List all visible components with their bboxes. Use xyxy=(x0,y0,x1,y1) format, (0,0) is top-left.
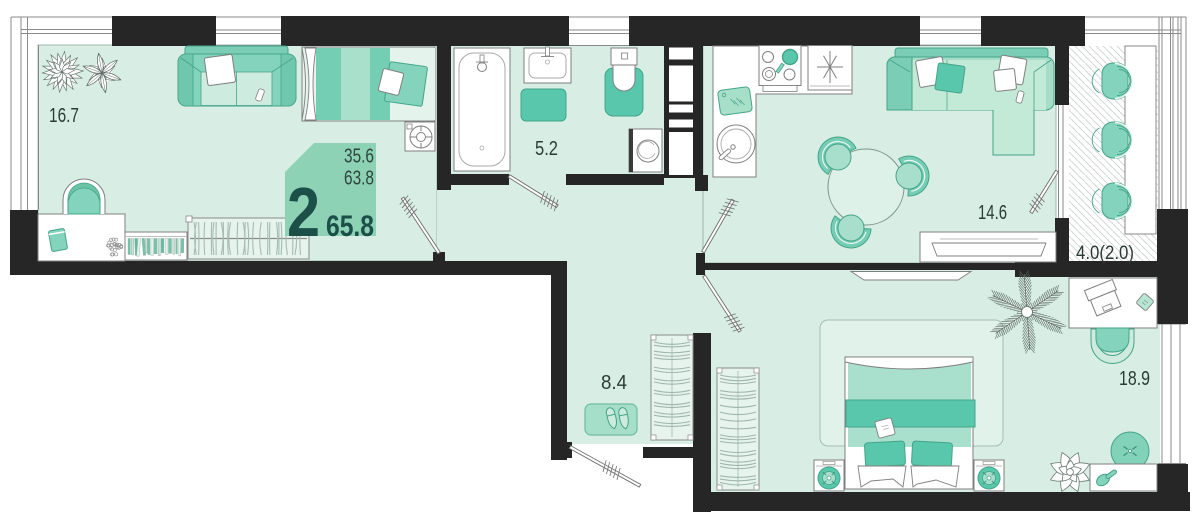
svg-text:14.6: 14.6 xyxy=(978,202,1007,224)
svg-text:63.8: 63.8 xyxy=(344,168,374,190)
svg-text:4.0(2.0): 4.0(2.0) xyxy=(1076,243,1134,264)
svg-text:18.9: 18.9 xyxy=(1119,368,1150,390)
svg-text:2: 2 xyxy=(287,173,320,251)
svg-text:65.8: 65.8 xyxy=(326,210,374,243)
svg-text:35.6: 35.6 xyxy=(344,146,374,168)
svg-text:8.4: 8.4 xyxy=(601,372,627,394)
svg-text:5.2: 5.2 xyxy=(535,138,558,160)
svg-text:16.7: 16.7 xyxy=(49,105,79,127)
